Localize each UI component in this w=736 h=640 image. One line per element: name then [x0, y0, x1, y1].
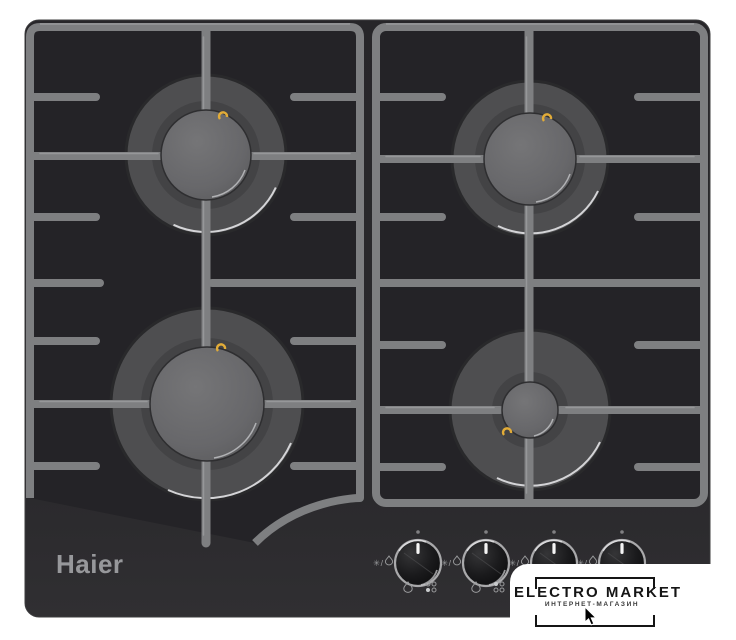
haier-logo: Haier: [56, 549, 124, 579]
watermark-title: ELECTRO MARKET: [514, 585, 670, 600]
watermark-electro-market: ELECTRO MARKET ИНТЕРНЕТ-МАГАЗИН: [510, 564, 736, 640]
burner-cap-rear-right: [484, 113, 576, 205]
burner-cap-front-left: [150, 347, 264, 461]
knob-indicator: [484, 543, 487, 554]
ignition-flame-icon: ✳/: [441, 558, 452, 568]
knob-indicator: [620, 543, 623, 554]
knob-dot: [484, 530, 488, 534]
ignition-flame-icon: ✳/: [373, 558, 384, 568]
knob-dot: [620, 530, 624, 534]
hob-photo: ✳/ ✳/: [0, 0, 736, 640]
mouse-cursor-icon: [584, 607, 598, 627]
knob-dot: [416, 530, 420, 534]
product-image: ✳/ ✳/: [0, 0, 736, 640]
knob-indicator: [552, 543, 555, 554]
knob-indicator: [416, 543, 419, 554]
burner-cap-rear-left: [161, 110, 251, 200]
knob-dot: [552, 530, 556, 534]
